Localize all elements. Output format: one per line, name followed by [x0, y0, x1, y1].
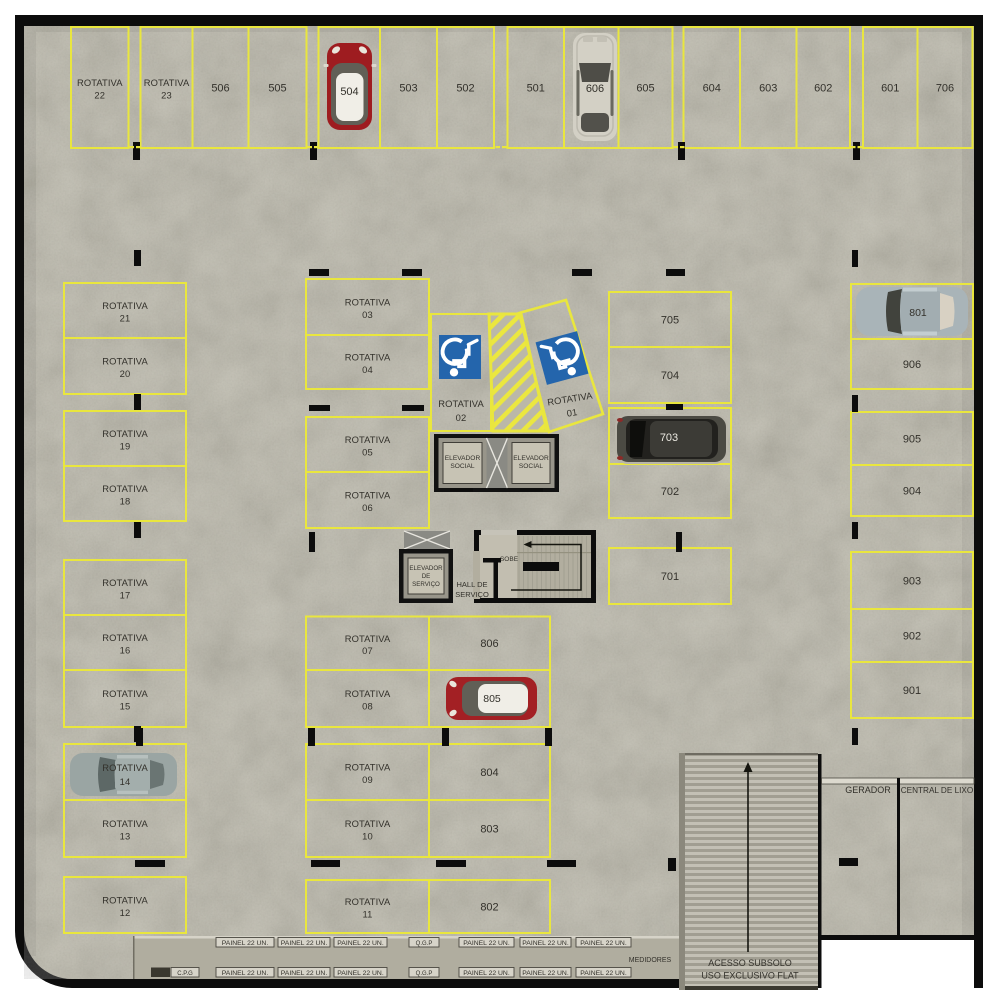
svg-text:HALL DE: HALL DE: [457, 580, 488, 589]
svg-text:ROTATIVA: ROTATIVA: [102, 483, 148, 494]
svg-text:ELEVADOR: ELEVADOR: [409, 565, 443, 572]
svg-text:802: 802: [480, 902, 498, 914]
svg-text:704: 704: [661, 370, 679, 382]
svg-text:PAINEL 22 UN.: PAINEL 22 UN.: [337, 940, 384, 947]
svg-text:SERVIÇO: SERVIÇO: [412, 581, 440, 588]
svg-text:PAINEL 22 UN.: PAINEL 22 UN.: [580, 970, 627, 977]
svg-text:701: 701: [661, 571, 679, 583]
svg-text:603: 603: [759, 83, 777, 95]
svg-text:13: 13: [120, 831, 131, 842]
svg-text:PAINEL 22 UN.: PAINEL 22 UN.: [522, 970, 569, 977]
svg-text:09: 09: [362, 774, 373, 785]
svg-text:17: 17: [120, 590, 131, 601]
svg-text:ROTATIVA: ROTATIVA: [345, 297, 391, 308]
svg-text:ROTATIVA: ROTATIVA: [77, 77, 123, 88]
svg-text:ROTATIVA: ROTATIVA: [345, 352, 391, 363]
svg-text:601: 601: [881, 83, 899, 95]
svg-text:08: 08: [362, 701, 373, 712]
svg-text:SOBE: SOBE: [500, 556, 519, 563]
svg-text:705: 705: [661, 315, 679, 327]
svg-text:PAINEL 22 UN.: PAINEL 22 UN.: [522, 940, 569, 947]
svg-text:703: 703: [660, 432, 678, 444]
svg-text:ROTATIVA: ROTATIVA: [345, 688, 391, 699]
svg-text:ROTATIVA: ROTATIVA: [345, 490, 391, 501]
svg-text:C.P.G: C.P.G: [177, 971, 193, 977]
svg-text:ROTATIVA: ROTATIVA: [438, 398, 484, 409]
svg-text:605: 605: [636, 83, 654, 95]
svg-text:805: 805: [483, 693, 501, 705]
svg-text:01: 01: [566, 406, 578, 419]
svg-text:ROTATIVA: ROTATIVA: [102, 428, 148, 439]
svg-text:505: 505: [268, 83, 286, 95]
svg-text:10: 10: [362, 831, 373, 842]
svg-text:ROTATIVA: ROTATIVA: [102, 632, 148, 643]
svg-text:706: 706: [936, 83, 954, 95]
svg-text:06: 06: [362, 502, 373, 513]
svg-text:ROTATIVA: ROTATIVA: [144, 77, 190, 88]
svg-text:ROTATIVA: ROTATIVA: [102, 818, 148, 829]
svg-text:ROTATIVA: ROTATIVA: [345, 434, 391, 445]
svg-text:ROTATIVA: ROTATIVA: [345, 633, 391, 644]
svg-text:ELEVADOR: ELEVADOR: [513, 455, 549, 462]
svg-text:SERVIÇO: SERVIÇO: [455, 590, 489, 599]
svg-text:ELEVADOR: ELEVADOR: [445, 455, 481, 462]
svg-text:15: 15: [120, 701, 131, 712]
svg-text:SOCIAL: SOCIAL: [450, 463, 475, 470]
svg-text:906: 906: [903, 359, 921, 371]
svg-text:SOCIAL: SOCIAL: [519, 463, 544, 470]
svg-text:801: 801: [909, 307, 927, 319]
svg-text:PAINEL 22 UN.: PAINEL 22 UN.: [463, 970, 510, 977]
svg-text:PAINEL 22 UN.: PAINEL 22 UN.: [222, 970, 269, 977]
svg-text:21: 21: [120, 313, 131, 324]
svg-text:PAINEL 22 UN.: PAINEL 22 UN.: [463, 940, 510, 947]
svg-text:05: 05: [362, 447, 373, 458]
svg-text:904: 904: [903, 486, 921, 498]
svg-text:20: 20: [120, 368, 131, 379]
svg-text:ROTATIVA: ROTATIVA: [102, 688, 148, 699]
svg-text:PAINEL 22 UN.: PAINEL 22 UN.: [337, 970, 384, 977]
svg-text:02: 02: [456, 412, 467, 423]
svg-text:18: 18: [120, 496, 131, 507]
svg-text:19: 19: [120, 441, 131, 452]
svg-text:501: 501: [527, 83, 545, 95]
svg-text:16: 16: [120, 645, 131, 656]
svg-text:ROTATIVA: ROTATIVA: [345, 762, 391, 773]
svg-text:ROTATIVA: ROTATIVA: [102, 300, 148, 311]
svg-text:23: 23: [161, 90, 172, 101]
svg-text:ROTATIVA: ROTATIVA: [102, 356, 148, 367]
svg-text:Q.G.P: Q.G.P: [416, 941, 433, 947]
svg-text:806: 806: [480, 638, 498, 650]
svg-text:905: 905: [903, 434, 921, 446]
svg-text:ACESSO SUBSOLO: ACESSO SUBSOLO: [708, 958, 792, 968]
svg-text:ROTATIVA: ROTATIVA: [102, 577, 148, 588]
svg-text:04: 04: [362, 364, 373, 375]
svg-text:504: 504: [340, 86, 358, 98]
svg-text:803: 803: [480, 824, 498, 836]
svg-text:901: 901: [903, 685, 921, 697]
svg-text:ROTATIVA: ROTATIVA: [102, 895, 148, 906]
svg-text:PAINEL 22 UN.: PAINEL 22 UN.: [222, 940, 269, 947]
svg-text:ROTATIVA: ROTATIVA: [345, 896, 391, 907]
svg-text:USO EXCLUSIVO FLAT: USO EXCLUSIVO FLAT: [701, 971, 799, 981]
svg-text:03: 03: [362, 309, 373, 320]
svg-text:Q.G.P: Q.G.P: [416, 971, 433, 977]
svg-text:PAINEL 22 UN.: PAINEL 22 UN.: [580, 940, 627, 947]
svg-text:503: 503: [399, 83, 417, 95]
svg-text:12: 12: [120, 907, 131, 918]
svg-text:606: 606: [586, 83, 604, 95]
svg-text:502: 502: [456, 83, 474, 95]
svg-text:DE: DE: [422, 573, 431, 580]
svg-text:PAINEL 22 UN.: PAINEL 22 UN.: [281, 940, 328, 947]
svg-text:CENTRAL DE LIXO: CENTRAL DE LIXO: [901, 786, 974, 795]
svg-text:22: 22: [94, 90, 105, 101]
svg-text:506: 506: [211, 83, 229, 95]
svg-text:804: 804: [480, 767, 498, 779]
svg-text:07: 07: [362, 645, 373, 656]
svg-text:903: 903: [903, 576, 921, 588]
svg-text:MEDIDORES: MEDIDORES: [629, 957, 672, 964]
svg-text:ROTATIVA: ROTATIVA: [102, 762, 148, 773]
svg-text:902: 902: [903, 631, 921, 643]
svg-text:GERADOR: GERADOR: [845, 785, 891, 795]
svg-text:14: 14: [120, 776, 131, 787]
svg-text:PAINEL 22 UN.: PAINEL 22 UN.: [281, 970, 328, 977]
svg-text:ROTATIVA: ROTATIVA: [345, 818, 391, 829]
svg-text:604: 604: [703, 83, 721, 95]
svg-text:702: 702: [661, 486, 679, 498]
svg-text:11: 11: [363, 909, 373, 920]
svg-text:602: 602: [814, 83, 832, 95]
